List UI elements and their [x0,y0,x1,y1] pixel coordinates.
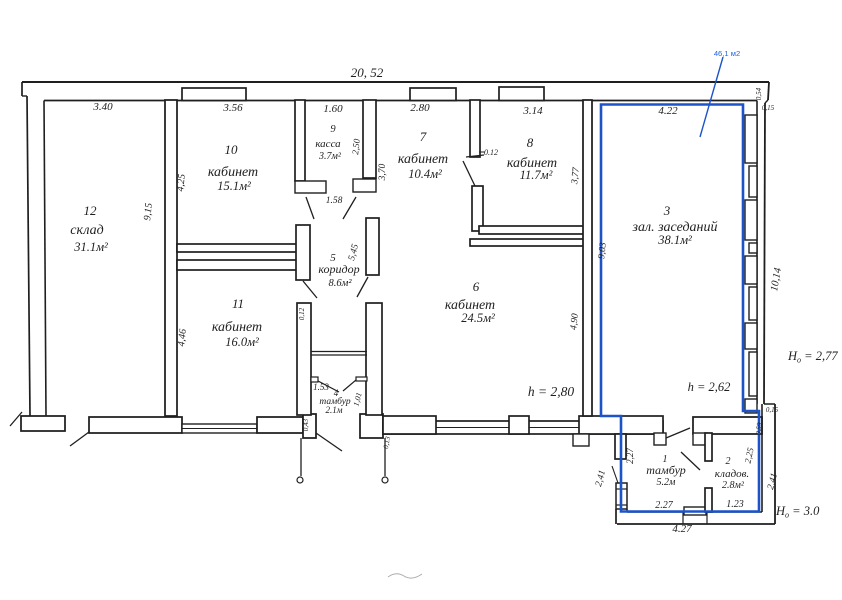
svg-text:кабинет: кабинет [212,320,262,335]
svg-text:6: 6 [473,279,480,294]
svg-text:11.7м²: 11.7м² [520,168,553,182]
svg-text:1.58: 1.58 [326,196,343,206]
svg-text:3.7м²: 3.7м² [318,151,342,162]
svg-text:кабинет: кабинет [208,165,258,180]
svg-text:11: 11 [232,296,244,311]
svg-text:0,12: 0,12 [298,307,306,320]
svg-text:31.1м²: 31.1м² [73,240,108,254]
svg-text:10.4м²: 10.4м² [408,167,442,181]
svg-text:38.1м²: 38.1м² [657,233,692,247]
svg-text:16.0м²: 16.0м² [225,335,259,349]
svg-text:9,15: 9,15 [142,202,155,221]
svg-text:0,59: 0,59 [754,422,763,436]
svg-text:8: 8 [527,135,534,150]
svg-text:3.56: 3.56 [222,102,243,114]
svg-text:3.14: 3.14 [522,105,543,117]
svg-text:кабинет: кабинет [398,152,448,167]
svg-text:4.27: 4.27 [672,523,692,535]
svg-text:7: 7 [420,129,427,144]
svg-text:2.27: 2.27 [655,500,674,511]
svg-text:h = 2,80: h = 2,80 [528,384,574,399]
svg-text:2: 2 [726,456,731,467]
svg-text:склад: склад [70,223,103,238]
svg-text:12: 12 [84,203,98,218]
svg-text:0.12: 0.12 [484,148,498,157]
svg-text:0,15: 0,15 [766,406,779,414]
svg-text:9: 9 [330,124,336,135]
svg-text:10: 10 [225,142,239,157]
svg-text:4,25: 4,25 [175,173,188,192]
svg-text:4,46: 4,46 [176,328,189,347]
svg-text:тамбур: тамбур [646,463,686,477]
svg-text:h = 2,62: h = 2,62 [688,380,731,394]
svg-text:3,70: 3,70 [378,163,388,181]
svg-text:3: 3 [663,203,671,218]
svg-text:24.5м²: 24.5м² [461,311,495,325]
svg-text:46,1 м2: 46,1 м2 [714,49,740,58]
svg-text:кладов.: кладов. [715,468,749,480]
svg-text:коридор: коридор [318,262,359,276]
svg-text:1.23: 1.23 [726,499,744,510]
svg-text:20, 52: 20, 52 [351,65,384,80]
svg-text:15.1м²: 15.1м² [217,179,251,193]
svg-text:0,43: 0,43 [302,418,310,431]
svg-text:2,50: 2,50 [350,138,362,155]
svg-text:Ho = 2,77: Ho = 2,77 [787,349,838,365]
svg-text:2.1м: 2.1м [326,405,343,415]
svg-text:5.2м: 5.2м [657,477,677,488]
svg-text:3,77: 3,77 [570,166,582,186]
svg-text:2.80: 2.80 [410,102,430,114]
svg-text:0,54: 0,54 [755,87,763,100]
svg-text:9,03: 9,03 [597,242,609,260]
svg-text:4,90: 4,90 [569,313,581,331]
svg-text:4.22: 4.22 [658,105,678,117]
svg-text:0,15: 0,15 [762,104,775,112]
svg-text:2,27: 2,27 [625,448,635,464]
svg-text:касса: касса [315,138,341,150]
svg-text:Ho = 3.0: Ho = 3.0 [775,504,820,520]
svg-text:1.60: 1.60 [323,103,343,115]
svg-text:1.53: 1.53 [313,382,329,392]
svg-text:8.6м²: 8.6м² [329,278,353,289]
svg-text:2.8м²: 2.8м² [722,480,745,491]
svg-text:3.40: 3.40 [92,101,113,113]
